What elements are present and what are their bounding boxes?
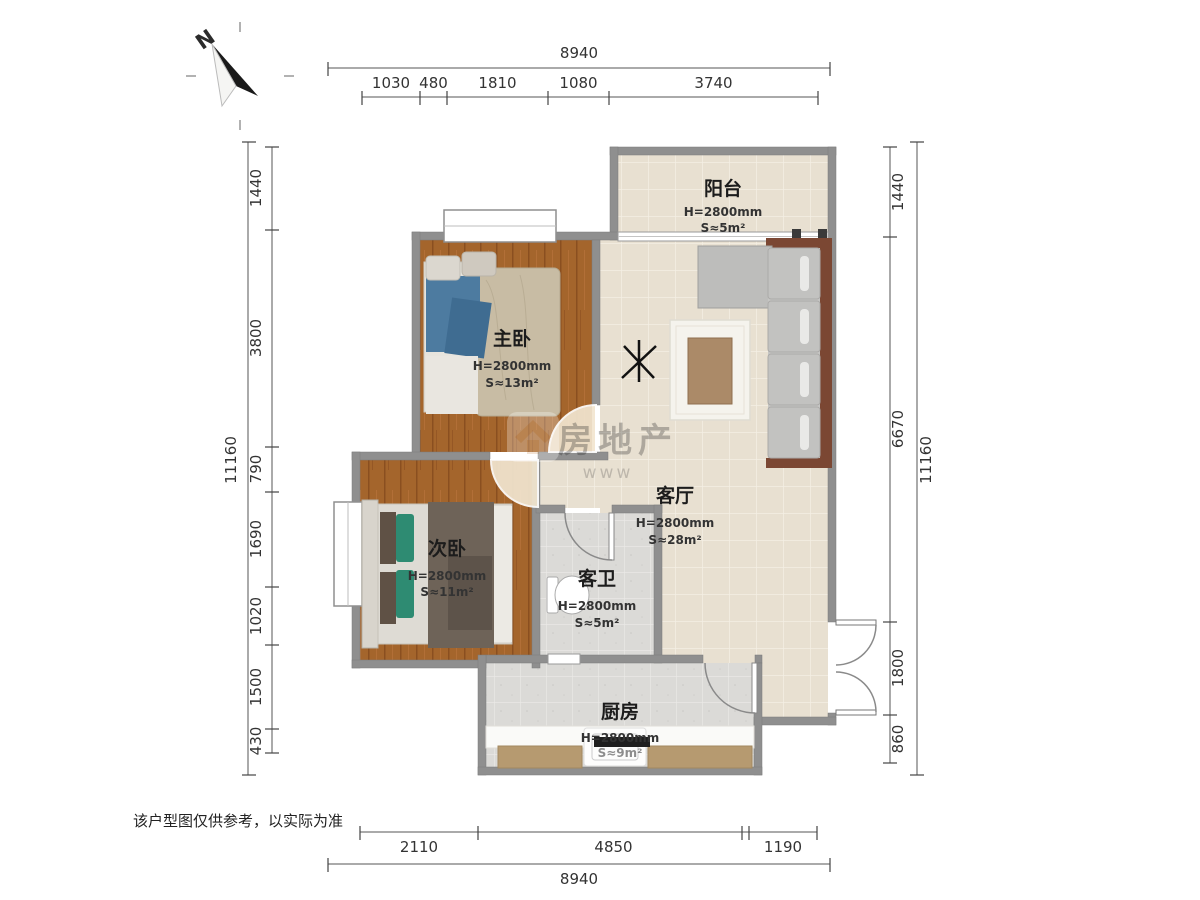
dim-top-seg-2: 1810	[478, 74, 516, 92]
floor-plan-page: 房地产 www 阳台 H=2800mm S≈5m² 主卧 H=2800mm S≈…	[0, 0, 1200, 900]
balcony-area: S≈5m²	[701, 221, 746, 235]
bathroom-area: S≈5m²	[575, 616, 620, 630]
balcony-height: H=2800mm	[684, 205, 763, 219]
bathroom-top-wall-left	[536, 505, 565, 513]
disclaimer-text: 该户型图仅供参考，以实际为准	[133, 812, 343, 830]
living-height: H=2800mm	[636, 516, 715, 530]
dim-bottom-seg-0: 2110	[400, 838, 438, 856]
dim-top-seg-3: 1080	[559, 74, 597, 92]
dim-bottom-total: 8940	[560, 870, 598, 888]
living-bottom-wall	[754, 717, 836, 725]
dimension-right: 1440 6670 1800 860 11160	[883, 142, 935, 775]
dim-right-seg-0: 1440	[889, 173, 907, 211]
middle-wall-left	[352, 452, 490, 460]
dim-left-seg-1: 3800	[247, 319, 265, 357]
entry-double-door	[836, 620, 876, 715]
second-bedroom-bottom-wall	[352, 660, 486, 668]
dim-right-seg-2: 1800	[889, 649, 907, 687]
second-name: 次卧	[428, 537, 466, 560]
kitchen-top-wall-mid	[580, 655, 703, 663]
dim-left-seg-5: 1500	[247, 668, 265, 706]
balcony-top-wall	[610, 147, 836, 155]
dimension-top: 8940 1030 480 1810 1080 3740	[328, 44, 830, 105]
second-bedroom-window	[334, 502, 362, 606]
second-height: H=2800mm	[408, 569, 487, 583]
dim-bottom-seg-1: 4850	[594, 838, 632, 856]
dim-right-seg-3: 860	[889, 725, 907, 754]
dim-top-seg-4: 3740	[694, 74, 732, 92]
dim-bottom-seg-2: 1190	[764, 838, 802, 856]
dim-left-seg-2: 790	[247, 455, 265, 484]
balcony-left-wall	[610, 147, 618, 240]
dim-top-seg-1: 480	[419, 74, 448, 92]
kitchen-height: H=2800mm	[581, 731, 660, 745]
master-height: H=2800mm	[473, 359, 552, 373]
dim-left-seg-0: 1440	[247, 169, 265, 207]
master-area: S≈13m²	[485, 376, 538, 390]
dim-right-total: 11160	[917, 436, 935, 484]
house-icon	[507, 412, 559, 462]
master-left-wall	[412, 232, 420, 460]
dim-left-seg-4: 1020	[247, 597, 265, 635]
floor-plan-canvas: 房地产 www 阳台 H=2800mm S≈5m² 主卧 H=2800mm S≈…	[0, 0, 1200, 900]
compass: N	[186, 22, 294, 130]
master-name: 主卧	[493, 328, 531, 350]
coffee-table	[670, 320, 750, 420]
bathroom-name: 客卫	[578, 567, 616, 590]
dim-left-total: 11160	[222, 436, 240, 484]
kitchen-left-wall	[478, 655, 486, 775]
kitchen-top-wall-right	[755, 655, 762, 663]
watermark-subtext: www	[583, 463, 634, 483]
kitchen-pass-window	[548, 654, 580, 664]
master-bedroom-window	[444, 210, 556, 242]
kitchen-name: 厨房	[601, 700, 639, 723]
dim-top-total: 8940	[560, 44, 598, 62]
living-name: 客厅	[656, 484, 694, 507]
watermark-text: 房地产	[558, 421, 678, 461]
bathroom-height: H=2800mm	[558, 599, 637, 613]
dim-right-seg-1: 6670	[889, 410, 907, 448]
kitchen-area: S≈9m²	[598, 746, 643, 760]
second-area: S≈11m²	[420, 585, 473, 599]
dim-left-seg-3: 1690	[247, 520, 265, 558]
master-right-wall	[592, 240, 600, 405]
dimension-bottom: 2110 4850 1190 8940	[328, 826, 830, 888]
balcony-name: 阳台	[704, 177, 742, 200]
dimension-left: 11160 1440 3800 790 1690 1020 1500 430	[222, 142, 279, 775]
dim-left-seg-6: 430	[247, 727, 265, 756]
dim-top-seg-0: 1030	[372, 74, 410, 92]
kitchen-top-wall-left	[486, 655, 548, 663]
living-area: S≈28m²	[648, 533, 701, 547]
